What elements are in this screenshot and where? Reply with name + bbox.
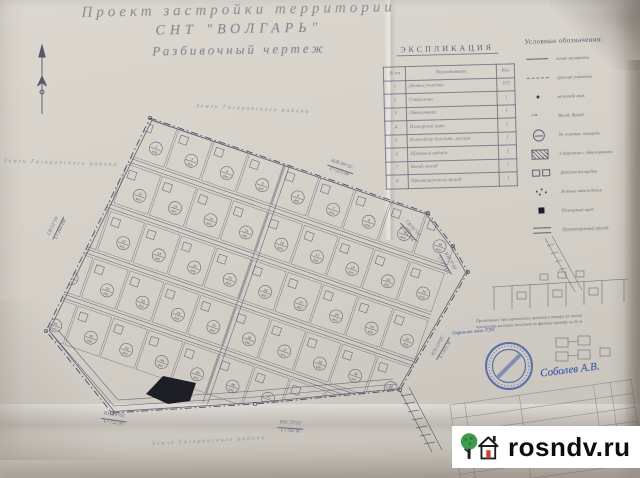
plot-cell: 2600 — [130, 117, 177, 167]
explication-cell: Проектируемый проезд — [408, 172, 499, 188]
north-arrow-icon — [38, 45, 47, 114]
edge-label-left: СВ 53°19' L=260.4М — [46, 214, 69, 242]
adjacent-land-label-top: Земли Гагаринского района — [196, 103, 310, 115]
explication-cell: 4 — [385, 121, 408, 135]
svg-text:30: 30 — [405, 337, 410, 342]
svg-text:600: 600 — [242, 233, 249, 239]
svg-text:600: 600 — [348, 270, 355, 276]
svg-text:42: 42 — [89, 334, 94, 339]
drawing-title: Проект застройки территории СНТ "ВОЛГАРЬ… — [78, 0, 401, 61]
explication-cell: 1 — [499, 158, 517, 172]
svg-text:600: 600 — [209, 328, 216, 334]
svg-text:600: 600 — [187, 162, 194, 168]
svg-text:31: 31 — [70, 274, 75, 279]
adjacent-land-label-bottom: Земли Гагаринского района — [152, 435, 266, 447]
explication-cell: 319 — [497, 77, 515, 91]
svg-text:600: 600 — [296, 305, 303, 311]
plot-cell: 45600 — [171, 343, 218, 393]
plot-cell: 32600 — [81, 259, 128, 309]
svg-text:600: 600 — [364, 223, 371, 229]
svg-text:33: 33 — [140, 299, 145, 304]
black-square-icon — [530, 205, 556, 217]
legend-item: Зелёные насаждения — [530, 183, 640, 198]
svg-text:600: 600 — [122, 351, 129, 357]
svg-text:2: 2 — [155, 145, 158, 149]
legend-item-label: Зелёные насаждения — [561, 187, 602, 194]
svg-text:14: 14 — [209, 216, 214, 221]
plot-cell: 29600 — [346, 297, 393, 347]
plot-cell: 16600 — [256, 213, 303, 263]
plot-cell: 38600 — [294, 332, 341, 382]
plot-cell: 13600 — [149, 176, 196, 226]
photo-scene: 1600260036004600560066007600860096001060… — [0, 0, 640, 478]
explication-table: № пп Наименование Кол 1Дачные участки319… — [383, 63, 518, 189]
title-line-1: Проект застройки территории — [78, 0, 400, 22]
explication-cell: 1 — [384, 80, 407, 94]
legend-item-label: Сторожка с обвалованием — [559, 149, 612, 156]
explication-cell: 6 — [385, 148, 408, 162]
svg-text:600: 600 — [293, 198, 300, 204]
svg-text:600: 600 — [335, 424, 342, 430]
detail-plan-sketch — [556, 336, 610, 361]
svg-text:600: 600 — [51, 326, 58, 332]
svg-text:19: 19 — [386, 277, 391, 282]
svg-text:3: 3 — [190, 157, 193, 161]
svg-text:47: 47 — [266, 395, 271, 400]
svg-text:20: 20 — [421, 289, 426, 294]
svg-text:600: 600 — [67, 279, 74, 285]
plot-cell: 20600 — [398, 262, 445, 312]
svg-text:600: 600 — [151, 149, 158, 155]
svg-text:6: 6 — [297, 194, 300, 198]
svg-text:600: 600 — [299, 412, 306, 418]
legend-item: Детская площадка — [529, 164, 639, 179]
svg-text:36: 36 — [247, 335, 252, 340]
svg-text:600: 600 — [280, 352, 287, 358]
explication-cell: 1 — [497, 91, 515, 105]
svg-text:50: 50 — [372, 431, 377, 436]
plot-cell: 41600 — [30, 294, 77, 344]
plot-cell: 12600 — [114, 164, 161, 214]
svg-text:1: 1 — [119, 133, 122, 137]
explication-cell: 5 — [385, 134, 408, 148]
road-icon — [531, 224, 557, 236]
plot-cell: 30600 — [381, 309, 428, 359]
title-line-2: СНТ "ВОЛГАРЬ" — [78, 19, 400, 41]
legend-item: линия застройки — [525, 50, 635, 65]
title-line-3: Разбивочный чертеж — [78, 39, 400, 61]
plot-cell: 4600 — [201, 141, 248, 191]
plot-cell: 21600 — [62, 199, 109, 249]
svg-text:600: 600 — [190, 268, 197, 274]
svg-text:43: 43 — [124, 346, 129, 351]
svg-text:45: 45 — [195, 370, 200, 375]
explication-cell: 1 — [499, 172, 517, 186]
plot-cell: 3600 — [166, 129, 213, 179]
svg-text:600: 600 — [261, 293, 268, 299]
explication-cell: 1 — [498, 104, 516, 118]
explication-cell: 3 — [384, 107, 407, 121]
explication-cell: 1 — [499, 145, 517, 159]
plot-cell: 17600 — [291, 225, 338, 275]
plot-cell: 22600 — [98, 211, 145, 261]
exit-road — [399, 387, 442, 452]
explication-col-num: № пп — [383, 67, 406, 81]
svg-text:39: 39 — [353, 372, 358, 377]
legend-item: граница участков — [526, 69, 636, 84]
svg-text:600: 600 — [193, 375, 200, 381]
legend-item-label: Детская площадка — [560, 168, 597, 175]
plot-cell: 39600 — [330, 344, 377, 394]
plot-cell: 23600 — [133, 224, 180, 274]
legend-item: № участка, площадь — [528, 126, 638, 141]
plot-cell: 1600 — [95, 105, 142, 155]
plot-cell: 40600 — [365, 356, 412, 406]
svg-text:600: 600 — [103, 291, 110, 297]
svg-text:5: 5 — [261, 181, 264, 185]
svg-text:16: 16 — [279, 241, 284, 246]
legend-item-label: Въезд, Выезд — [558, 112, 584, 118]
legend-item: →Въезд, Выезд — [527, 107, 637, 122]
svg-text:18: 18 — [350, 265, 355, 270]
explication-title: ЭКСПЛИКАЦИЯ — [396, 43, 498, 57]
legend-item: межевой знак — [526, 88, 636, 103]
svg-text:600: 600 — [419, 294, 426, 300]
svg-text:600: 600 — [264, 400, 271, 406]
svg-text:40: 40 — [389, 384, 394, 389]
legend-item-label: Проектируемый проезд — [562, 225, 608, 232]
legend-item: Сторожка с обвалованием — [528, 145, 638, 160]
arrow-icon: → — [527, 110, 553, 122]
svg-text:7: 7 — [332, 206, 335, 210]
plot-cell: 31600 — [46, 246, 93, 296]
round-stamp-icon — [486, 343, 532, 389]
legend-item-label: линия застройки — [556, 55, 589, 61]
svg-text:600: 600 — [83, 232, 90, 238]
plot-cell: 37600 — [259, 320, 306, 370]
svg-text:8: 8 — [368, 218, 371, 222]
svg-text:600: 600 — [312, 258, 319, 264]
legend-road-sketch — [545, 236, 582, 292]
plot-cell: 27600 — [275, 272, 322, 322]
svg-text:29: 29 — [370, 325, 375, 330]
svg-text:25: 25 — [228, 276, 233, 281]
svg-text:26: 26 — [263, 288, 268, 293]
svg-text:600: 600 — [244, 340, 251, 346]
svg-text:32: 32 — [105, 286, 110, 291]
plot-cell: 34600 — [152, 283, 199, 333]
note-text: Примечание: при перенесении проекта в на… — [476, 310, 636, 331]
legend-item: Пожарный щит — [530, 202, 640, 217]
plot-cell: 15600 — [220, 201, 267, 251]
svg-text:600: 600 — [383, 282, 390, 288]
svg-text:600: 600 — [258, 186, 265, 192]
svg-text:600: 600 — [329, 210, 336, 216]
svg-text:600: 600 — [222, 174, 229, 180]
svg-text:600: 600 — [206, 221, 213, 227]
svg-text:600: 600 — [315, 364, 322, 370]
svg-text:600: 600 — [228, 387, 235, 393]
plot-cell: 26600 — [239, 260, 286, 310]
hatched-icon — [528, 148, 554, 160]
line-solid-icon — [525, 53, 551, 65]
edge-label-right: ЮВ 8°10' L=17.4М — [434, 250, 458, 278]
watermark-badge: rosndv.ru — [452, 426, 640, 468]
plot-cell: 6600 — [272, 166, 319, 216]
svg-text:600: 600 — [135, 197, 142, 203]
perimeter-road — [52, 330, 397, 406]
svg-text:38: 38 — [318, 360, 323, 365]
svg-text:22: 22 — [121, 239, 126, 244]
line-thin-icon — [526, 72, 552, 84]
plot-cell: 33600 — [117, 271, 164, 321]
svg-text:35: 35 — [211, 323, 216, 328]
svg-text:600: 600 — [403, 342, 410, 348]
plot-cell: 44600 — [136, 330, 183, 380]
plot-cell: 24600 — [169, 236, 216, 286]
explication-cell: 7 — [386, 161, 409, 175]
svg-text:28: 28 — [334, 312, 339, 317]
svg-text:10: 10 — [438, 242, 443, 247]
circle-number-icon — [528, 129, 554, 141]
svg-text:600: 600 — [138, 303, 145, 309]
explication-col-qty: Кол — [497, 64, 515, 78]
detail-section-sketch — [492, 271, 628, 310]
explication-row: 8Проектируемый проезд1 — [386, 172, 517, 189]
svg-text:600: 600 — [367, 329, 374, 335]
plot-cell: 36600 — [223, 307, 270, 357]
svg-text:600: 600 — [370, 436, 377, 442]
svg-text:600: 600 — [174, 316, 181, 322]
adjacent-land-label-left: Земли Гагаринского района — [4, 158, 118, 168]
svg-text:600: 600 — [171, 209, 178, 215]
squares-icon — [529, 167, 555, 179]
paper-sheet: 1600260036004600560066007600860096001060… — [0, 0, 640, 478]
pond-shape — [146, 376, 196, 404]
legend-item-label: межевой знак — [557, 93, 584, 99]
edge-label-bottom-left: ЮЗ 16°05' L=152.99 — [100, 411, 128, 428]
plot-cell: 49600 — [313, 391, 360, 441]
explication-cell: 2 — [384, 94, 407, 108]
plot-cell: 11600 — [78, 152, 125, 202]
svg-text:600: 600 — [351, 377, 358, 383]
legend-item-label: № участка, площадь — [559, 130, 600, 137]
svg-text:46: 46 — [231, 382, 236, 387]
dot-icon — [526, 91, 552, 103]
edge-label-upper-right: СВ 81°10' L=33.4М — [396, 218, 423, 246]
watermark-text: rosndv.ru — [508, 432, 630, 463]
plot-cell: 46600 — [207, 355, 254, 405]
plot-cell: 5600 — [237, 153, 284, 203]
svg-text:17: 17 — [315, 253, 320, 258]
svg-text:34: 34 — [176, 311, 181, 316]
paper-shadow-bottom-left — [0, 300, 150, 460]
explication-cell: 8 — [386, 175, 409, 189]
legend-item: Проектируемый проезд — [531, 221, 640, 236]
legend-item-label: граница участков — [557, 74, 592, 80]
svg-text:600: 600 — [386, 389, 393, 395]
svg-text:41: 41 — [53, 321, 58, 326]
rosndv-logo-icon — [459, 429, 503, 465]
svg-text:48: 48 — [302, 407, 307, 412]
svg-text:600: 600 — [86, 339, 93, 345]
edge-label-top: ЮВ 49°35' L=223.94 — [325, 158, 355, 180]
plot-cell: 35600 — [188, 295, 235, 345]
legend-title: Условные обозначения: — [524, 34, 634, 47]
plot-cell: 19600 — [362, 250, 409, 300]
signature: Соболев А.В. — [539, 360, 600, 379]
plot-cell: 8600 — [343, 190, 390, 240]
svg-text:24: 24 — [192, 263, 197, 268]
dots-icon — [530, 186, 556, 198]
edge-label-lower-right: ЮЗ 33°05' L=101 М — [430, 334, 455, 363]
plot-cell: 18600 — [327, 237, 374, 287]
explication-cell: 1 — [498, 118, 516, 132]
svg-text:15: 15 — [244, 228, 249, 233]
svg-text:600: 600 — [157, 363, 164, 369]
explication-block: ЭКСПЛИКАЦИЯ № пп Наименование Кол 1Дачны… — [382, 36, 518, 189]
svg-text:600: 600 — [116, 137, 123, 143]
plot-cell: 28600 — [310, 285, 357, 335]
plot-cell: 25600 — [204, 248, 251, 298]
explication-cell: 1 — [498, 131, 516, 145]
legend-block: Условные обозначения: линия застройкигра… — [524, 34, 640, 244]
svg-text:600: 600 — [100, 184, 107, 190]
svg-text:21: 21 — [86, 227, 91, 232]
legend-item-label: Пожарный щит — [561, 207, 593, 213]
svg-text:600: 600 — [119, 244, 126, 250]
svg-text:4: 4 — [226, 169, 229, 173]
svg-text:600: 600 — [154, 256, 161, 262]
plot-cell: 47600 — [242, 367, 289, 417]
svg-text:12: 12 — [138, 192, 143, 197]
plot-cell: 50600 — [349, 404, 396, 454]
svg-text:600: 600 — [277, 246, 284, 252]
edge-label-bottom-right: ЮЗ 73°15' L=142 М — [277, 420, 304, 436]
plot-cell: 43600 — [101, 318, 148, 368]
svg-text:49: 49 — [337, 419, 342, 424]
svg-text:44: 44 — [160, 358, 165, 363]
svg-text:600: 600 — [332, 317, 339, 323]
svg-text:13: 13 — [173, 204, 178, 209]
svg-text:37: 37 — [282, 347, 287, 352]
plot-cell: 14600 — [185, 189, 232, 239]
plot-cell: 42600 — [65, 306, 112, 356]
svg-text:600: 600 — [225, 281, 232, 287]
plot-cell: 7600 — [307, 178, 354, 228]
svg-text:23: 23 — [157, 251, 162, 256]
svg-text:27: 27 — [299, 300, 304, 305]
svg-text:11: 11 — [102, 180, 107, 185]
